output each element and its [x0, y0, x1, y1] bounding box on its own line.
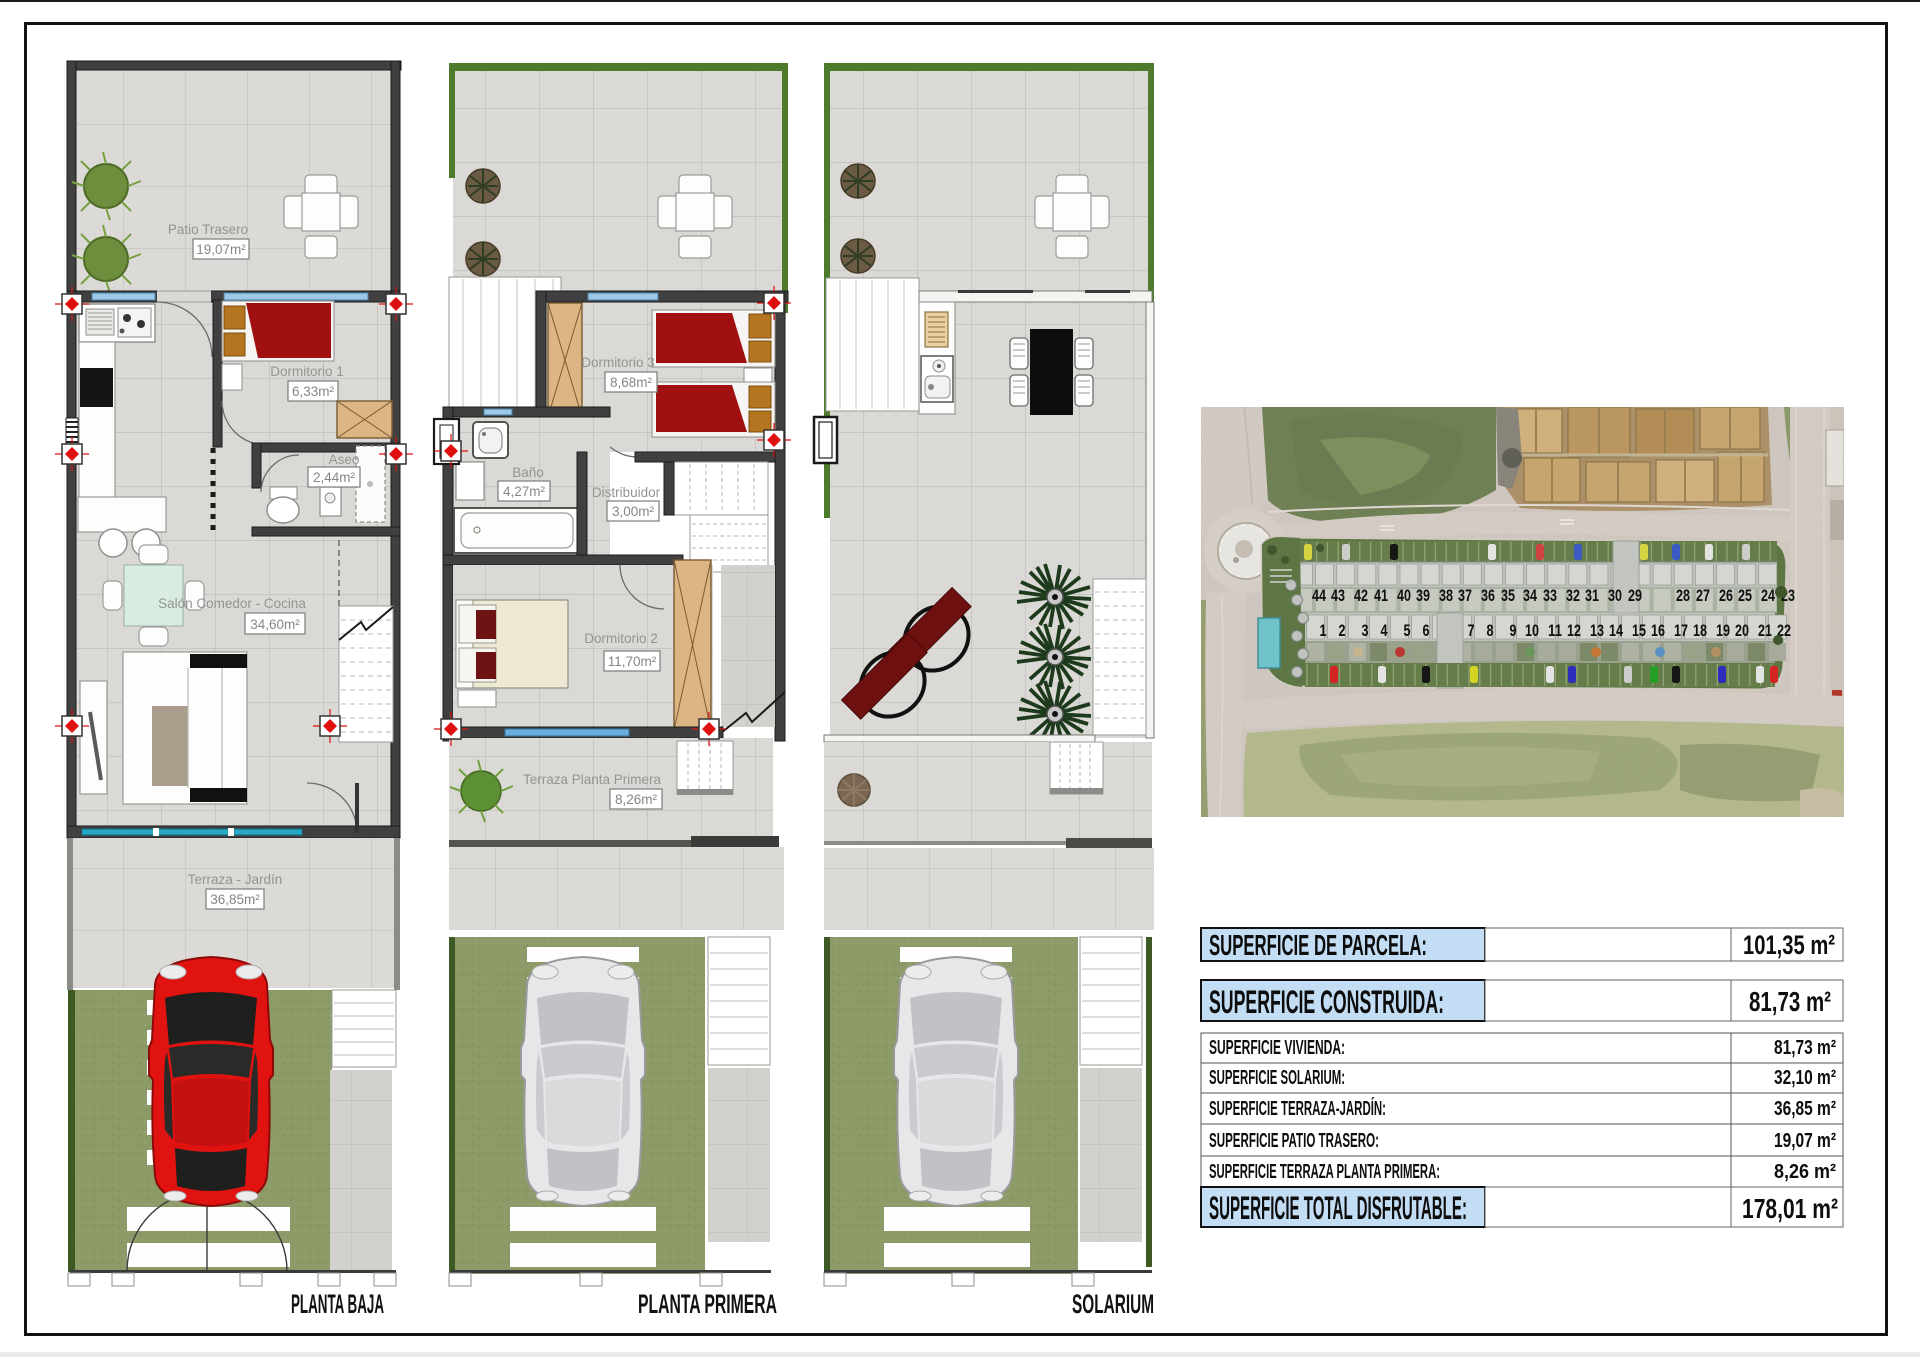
svg-text:36,85 m²: 36,85 m²: [1774, 1098, 1836, 1120]
svg-text:Aseo: Aseo: [329, 452, 360, 467]
svg-text:Dormitorio 2: Dormitorio 2: [584, 631, 658, 646]
svg-text:81,73 m²: 81,73 m²: [1749, 986, 1831, 1017]
svg-text:8,68m²: 8,68m²: [610, 375, 653, 390]
svg-text:SOLARIUM: SOLARIUM: [1072, 1289, 1154, 1319]
svg-text:3,00m²: 3,00m²: [612, 504, 655, 519]
svg-text:178,01 m²: 178,01 m²: [1742, 1193, 1838, 1224]
svg-text:11,70m²: 11,70m²: [608, 654, 657, 669]
svg-text:Salón Comedor - Cocina: Salón Comedor - Cocina: [158, 596, 306, 611]
svg-text:SUPERFICIE CONSTRUIDA:: SUPERFICIE CONSTRUIDA:: [1209, 984, 1444, 1020]
svg-text:81,73 m²: 81,73 m²: [1774, 1037, 1836, 1059]
svg-text:SUPERFICIE TERRAZA-JARDÍN:: SUPERFICIE TERRAZA-JARDÍN:: [1209, 1097, 1386, 1120]
svg-text:SUPERFICIE TOTAL DISFRUTABLE:: SUPERFICIE TOTAL DISFRUTABLE:: [1209, 1190, 1467, 1226]
svg-text:8,26 m²: 8,26 m²: [1774, 1161, 1836, 1183]
svg-text:4,27m²: 4,27m²: [503, 484, 546, 499]
svg-text:Terraza Planta Primera: Terraza Planta Primera: [523, 772, 662, 787]
svg-text:Baño: Baño: [512, 465, 544, 480]
svg-text:19,07 m²: 19,07 m²: [1774, 1130, 1836, 1152]
svg-text:SUPERFICIE TERRAZA PLANTA PRIM: SUPERFICIE TERRAZA PLANTA PRIMERA:: [1209, 1161, 1440, 1183]
svg-text:8,26m²: 8,26m²: [615, 792, 658, 807]
svg-text:SUPERFICIE PATIO TRASERO:: SUPERFICIE PATIO TRASERO:: [1209, 1130, 1379, 1152]
svg-text:PLANTA PRIMERA: PLANTA PRIMERA: [638, 1289, 777, 1319]
svg-text:Dormitorio 1: Dormitorio 1: [270, 364, 344, 379]
svg-text:Distribuidor: Distribuidor: [592, 485, 661, 500]
svg-text:SUPERFICIE DE PARCELA:: SUPERFICIE DE PARCELA:: [1209, 930, 1427, 962]
svg-text:19,07m²: 19,07m²: [196, 242, 246, 257]
svg-text:2,44m²: 2,44m²: [313, 470, 356, 485]
svg-text:SUPERFICIE VIVIENDA:: SUPERFICIE VIVIENDA:: [1209, 1037, 1345, 1059]
svg-text:101,35 m²: 101,35 m²: [1743, 930, 1835, 960]
svg-text:Patio Trasero: Patio Trasero: [168, 222, 248, 237]
svg-text:34,60m²: 34,60m²: [250, 617, 300, 632]
svg-text:6,33m²: 6,33m²: [292, 384, 335, 399]
svg-text:PLANTA BAJA: PLANTA BAJA: [291, 1289, 384, 1319]
svg-text:Terraza - Jardín: Terraza - Jardín: [188, 872, 283, 887]
svg-text:Dormitorio 3: Dormitorio 3: [581, 355, 655, 370]
svg-text:32,10 m²: 32,10 m²: [1774, 1067, 1836, 1089]
svg-text:36,85m²: 36,85m²: [210, 892, 260, 907]
svg-text:SUPERFICIE SOLARIUM:: SUPERFICIE SOLARIUM:: [1209, 1067, 1345, 1089]
